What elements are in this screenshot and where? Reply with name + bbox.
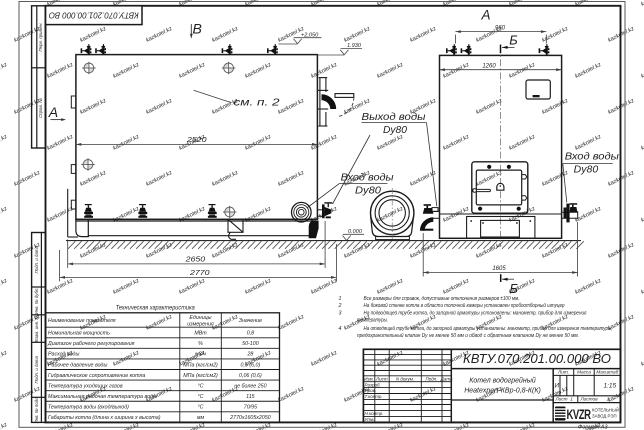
svg-text:1.930: 1.930 [347,43,362,49]
svg-text:МПа (кгс/см2): МПа (кгс/см2) [183,362,218,368]
svg-text:ЗАВОД РЭП: ЗАВОД РЭП [592,414,617,419]
svg-text:70/95: 70/95 [244,405,257,411]
svg-text:28: 28 [246,352,253,358]
svg-text:На боковой стенке котла в обла: На боковой стенке котла в области топочн… [364,302,565,309]
svg-text:0,06 (0,6): 0,06 (0,6) [239,373,262,379]
svg-text:%: % [198,341,203,347]
svg-text:На отводящей трубе котла, до з: На отводящей трубе котла, до запорной ар… [364,325,613,332]
svg-text:Листов: Листов [579,397,598,402]
svg-text:Разраб.: Разраб. [365,382,381,387]
svg-text:2770: 2770 [189,270,210,277]
svg-text:Взам. инв. №: Взам. инв. № [34,315,39,342]
svg-text:Лист: Лист [375,376,388,381]
svg-text:Heatexpert-КВр-0,8-К(К): Heatexpert-КВр-0,8-К(К) [464,388,541,395]
svg-text:0,8: 0,8 [247,331,254,337]
svg-text:Инв. № дубл.: Инв. № дубл. [34,287,39,314]
svg-text:1: 1 [339,296,342,302]
svg-text:2650: 2650 [184,257,205,264]
svg-text:Б: Б [509,32,518,47]
svg-text:2: 2 [606,397,610,402]
svg-text:Единицы: Единицы [189,315,211,321]
svg-text:Б: Б [510,281,519,296]
svg-text:КВТУ.070.201.00.000 ВО: КВТУ.070.201.00.000 ВО [49,10,139,20]
svg-text:3: 3 [339,310,342,316]
svg-text:Габариты котла (длина х ширина: Габариты котла (длина х ширина х высота) [48,415,161,421]
svg-text:КОТЕЛЬНЫЙ: КОТЕЛЬНЫЙ [592,408,619,413]
svg-text:Подп.: Подп. [426,376,438,381]
svg-text:Перв. примен.: Перв. примен. [38,22,43,51]
svg-text:1:15: 1:15 [604,383,617,390]
svg-text:Котел водогрейный: Котел водогрейный [469,377,536,385]
svg-text:МВт: МВт [194,331,207,337]
svg-text:Наименование показателя: Наименование показателя [48,318,116,324]
svg-text:А: А [48,104,58,120]
svg-text:Расход воды: Расход воды [48,352,79,358]
svg-text:не более 250: не более 250 [234,384,266,390]
svg-text:Вход воды: Вход воды [565,152,620,163]
svg-text:предохранительный клапан Dу н: предохранительный клапан Dу не менее 50 … [357,332,579,339]
svg-text:Утв.: Утв. [365,417,375,422]
svg-text:Выход воды: Выход воды [362,112,427,123]
svg-text:Подп. и дата: Подп. и дата [34,246,39,274]
svg-text:Dy80: Dy80 [574,165,599,176]
svg-text:Формат А3: Формат А3 [578,425,608,430]
svg-text:Вход воды: Вход воды [341,173,395,184]
svg-text:Номинальная мощность: Номинальная мощность [48,331,110,337]
svg-text:0,6 (6,0): 0,6 (6,0) [241,362,261,368]
svg-text:Рабочее давление воды: Рабочее давление воды [48,362,107,368]
svg-text:Дата: Дата [440,376,453,381]
svg-text:N докум.: N докум. [396,376,414,381]
svg-text:°С: °С [198,405,204,411]
svg-text:Пров.: Пров. [365,388,377,393]
svg-text:Т.контр.: Т.контр. [365,394,383,399]
svg-text:Температура воды (вход/выход): Температура воды (вход/выход) [48,405,129,411]
svg-text:Диапазон рабочего регулировани: Диапазон рабочего регулирования [47,341,135,347]
svg-text:Dy80: Dy80 [383,125,407,136]
svg-text:Изм.: Изм. [364,376,374,381]
svg-text:KVZR: KVZR [567,407,592,422]
svg-text:2: 2 [338,303,342,309]
svg-text:2520: 2520 [186,137,207,144]
svg-text:мм: мм [197,415,205,421]
svg-text:Dy80: Dy80 [355,186,381,197]
svg-text:°С: °С [198,394,204,400]
svg-text:1: 1 [570,397,573,402]
svg-text:Лист: Лист [554,397,567,402]
svg-text:Все размеры для справок, допус: Все размеры для справок, допустимые откл… [364,296,520,302]
svg-text:Н.контр.: Н.контр. [365,411,384,416]
svg-text:измерения: измерения [187,322,214,328]
svg-text:см. п. 2: см. п. 2 [234,98,281,109]
svg-text:Масса: Масса [577,370,591,375]
svg-text:м3/ч: м3/ч [195,352,206,358]
svg-text:4: 4 [339,326,342,332]
svg-text:Масштаб: Масштаб [596,370,618,375]
svg-text:Справ. №: Справ. № [38,98,43,118]
svg-text:КВТУ.070.201.00.000 ВО: КВТУ.070.201.00.000 ВО [463,351,611,366]
svg-text:Значение: Значение [239,318,262,324]
svg-text:На подводящей трубе котла, до: На подводящей трубе котла, до запорной а… [364,309,587,316]
svg-text:Лит.: Лит. [557,370,569,375]
svg-text:Гидравлическое сопротивление к: Гидравлическое сопротивление котла [48,373,145,379]
svg-text:115: 115 [246,394,254,400]
svg-text:МПа (кгс/см2): МПа (кгс/см2) [183,373,218,379]
svg-text:В: В [193,21,202,37]
svg-text:Температура уходящих газов: Температура уходящих газов [48,384,123,390]
svg-text:°С: °С [198,384,204,390]
svg-text:2770х1605х2050: 2770х1605х2050 [229,415,271,421]
svg-text:960: 960 [495,25,506,31]
svg-text:Подп. и дата: Подп. и дата [34,356,39,384]
svg-text:Максимальная рабочая температу: Максимальная рабочая температура воды [48,394,157,400]
svg-text:температуры.: температуры. [357,318,388,324]
svg-text:А: А [481,8,491,23]
svg-text:+2,050: +2,050 [301,32,319,38]
svg-text:50-100: 50-100 [242,341,259,347]
svg-text:Техническая характеристика: Техническая характеристика [116,305,196,312]
svg-text:0.000: 0.000 [348,229,363,235]
svg-text:И: И [555,383,560,390]
svg-text:1260: 1260 [482,63,496,69]
svg-text:Инв. № подл.: Инв. № подл. [34,396,39,423]
svg-text:1605: 1605 [492,266,506,272]
